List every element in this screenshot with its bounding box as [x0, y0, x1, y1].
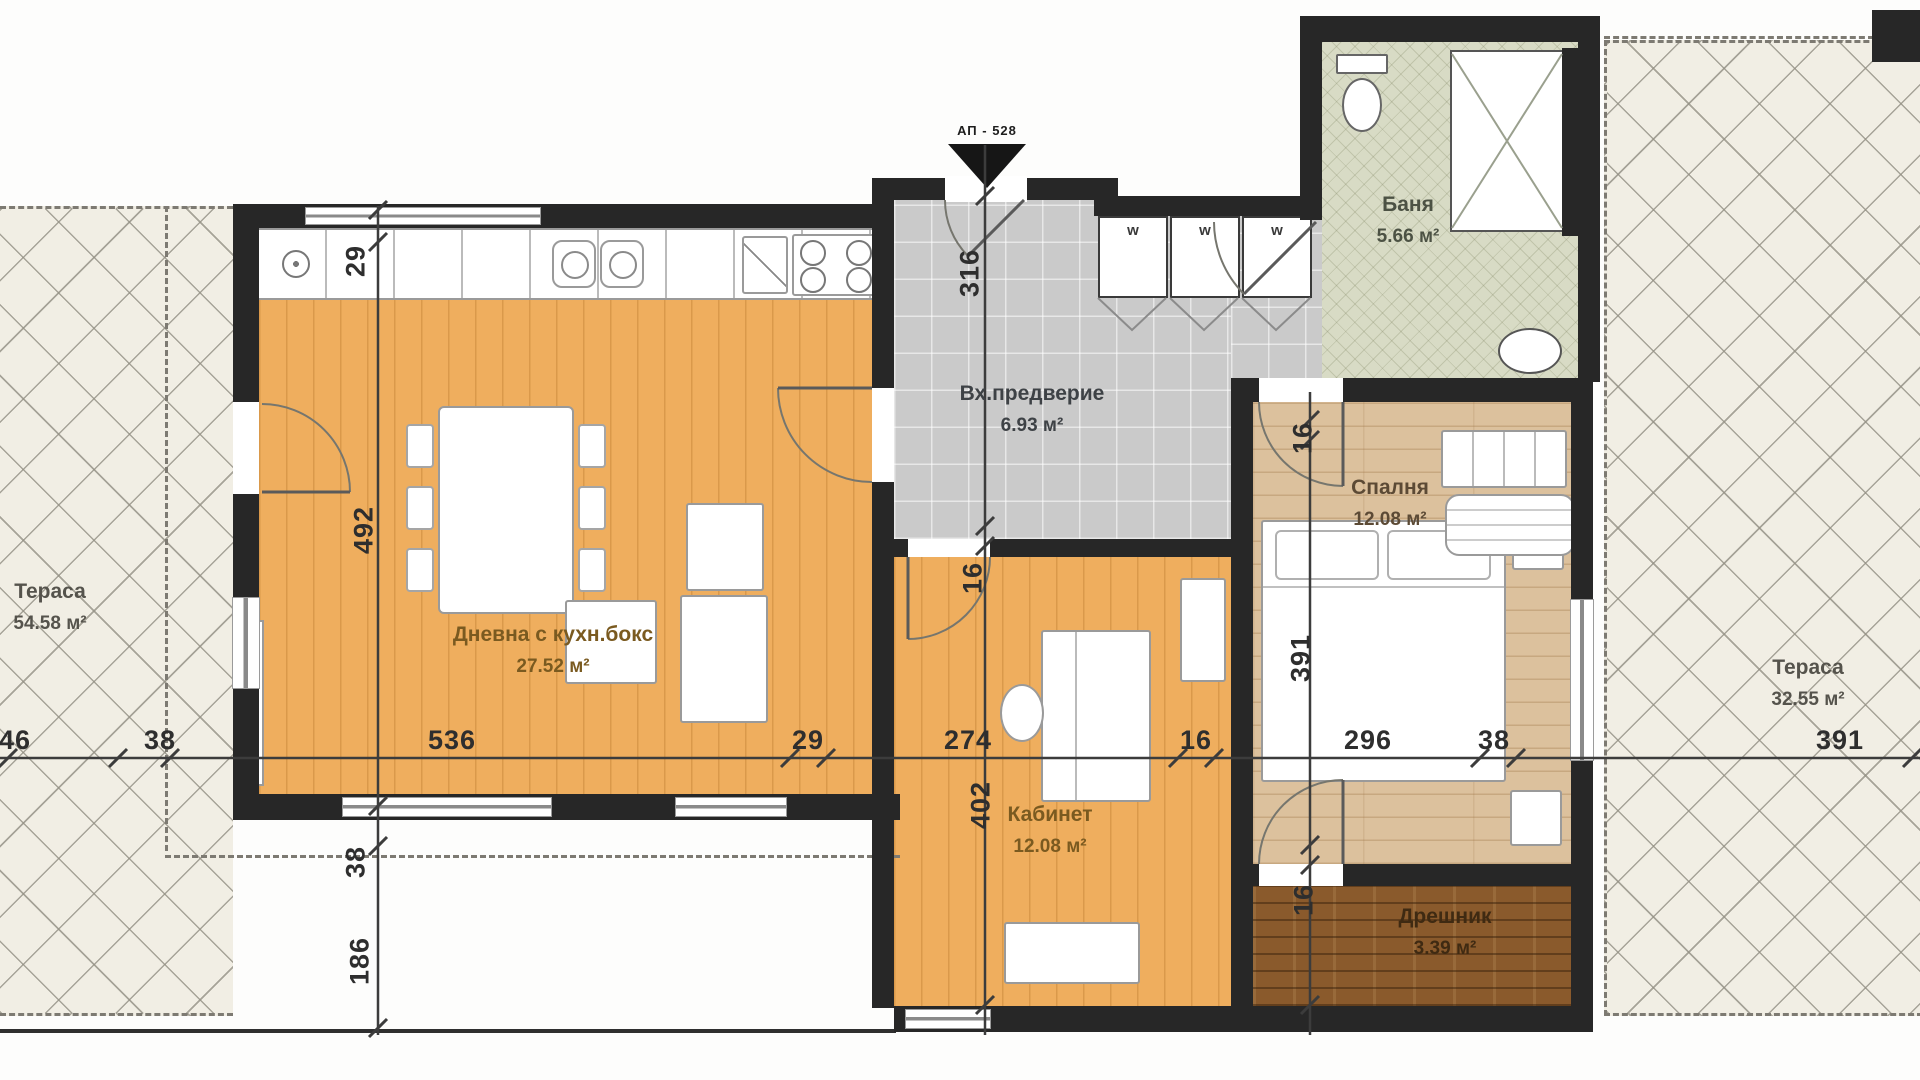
dim-label: 16 [1289, 884, 1320, 916]
room-name: Тераса [1771, 652, 1844, 685]
floor-plan: w w w [0, 0, 1920, 1080]
room-name: Дрешник [1398, 901, 1491, 934]
dim-label: 536 [428, 725, 476, 756]
room-name: Кабинет [1007, 799, 1092, 832]
dim-label: 16 [1288, 422, 1319, 454]
dim-label: 316 [955, 249, 986, 297]
dim-label: 16 [1180, 725, 1212, 756]
room-area: 32.55 м² [1771, 685, 1844, 714]
room-label-terrace-left: Тераса 54.58 м² [13, 576, 86, 638]
room-label-bath: Баня 5.66 м² [1377, 189, 1440, 251]
apartment-number-label: АП - 528 [957, 123, 1017, 138]
dim-label: 38 [341, 846, 372, 878]
dim-label: 391 [1286, 634, 1317, 682]
room-label-vestibule: Вх.предверие 6.93 м² [960, 378, 1105, 440]
room-area: 12.08 м² [1007, 832, 1092, 861]
dim-label: 46 [0, 725, 31, 756]
dim-label: 38 [144, 725, 176, 756]
room-name: Баня [1377, 189, 1440, 222]
dim-label: 16 [958, 562, 989, 594]
room-name: Спалня [1351, 472, 1429, 505]
dim-label: 29 [792, 725, 824, 756]
dim-label: 402 [966, 781, 997, 829]
dimension-ticks [0, 187, 1920, 1037]
dim-label: 29 [341, 245, 372, 277]
room-label-office: Кабинет 12.08 м² [1007, 799, 1092, 861]
folding-door-icon [1098, 298, 1310, 330]
room-area: 5.66 м² [1377, 222, 1440, 251]
room-label-terrace-right: Тераса 32.55 м² [1771, 652, 1844, 714]
entrance-arrow-icon [948, 144, 1026, 188]
door-arcs [262, 200, 1343, 864]
room-label-closet: Дрешник 3.39 м² [1398, 901, 1491, 963]
room-area: 12.08 м² [1351, 505, 1429, 534]
door-leaves [262, 200, 1343, 864]
room-name: Дневна с кухн.бокс [453, 619, 653, 652]
dim-label: 492 [349, 506, 380, 554]
dim-label: 38 [1478, 725, 1510, 756]
shower-cross-icon [1452, 54, 1562, 228]
room-label-bedroom: Спалня 12.08 м² [1351, 472, 1429, 534]
room-area: 3.39 м² [1398, 934, 1491, 963]
dim-label: 296 [1344, 725, 1392, 756]
room-name: Вх.предверие [960, 378, 1105, 411]
dim-label: 186 [345, 937, 376, 985]
room-area: 27.52 м² [453, 652, 653, 681]
room-area: 54.58 м² [13, 609, 86, 638]
room-area: 6.93 м² [960, 411, 1105, 440]
room-label-living: Дневна с кухн.бокс 27.52 м² [453, 619, 653, 681]
dim-label: 274 [944, 725, 992, 756]
dim-label: 391 [1816, 725, 1864, 756]
room-name: Тераса [13, 576, 86, 609]
plan-annotations [0, 0, 1920, 1080]
